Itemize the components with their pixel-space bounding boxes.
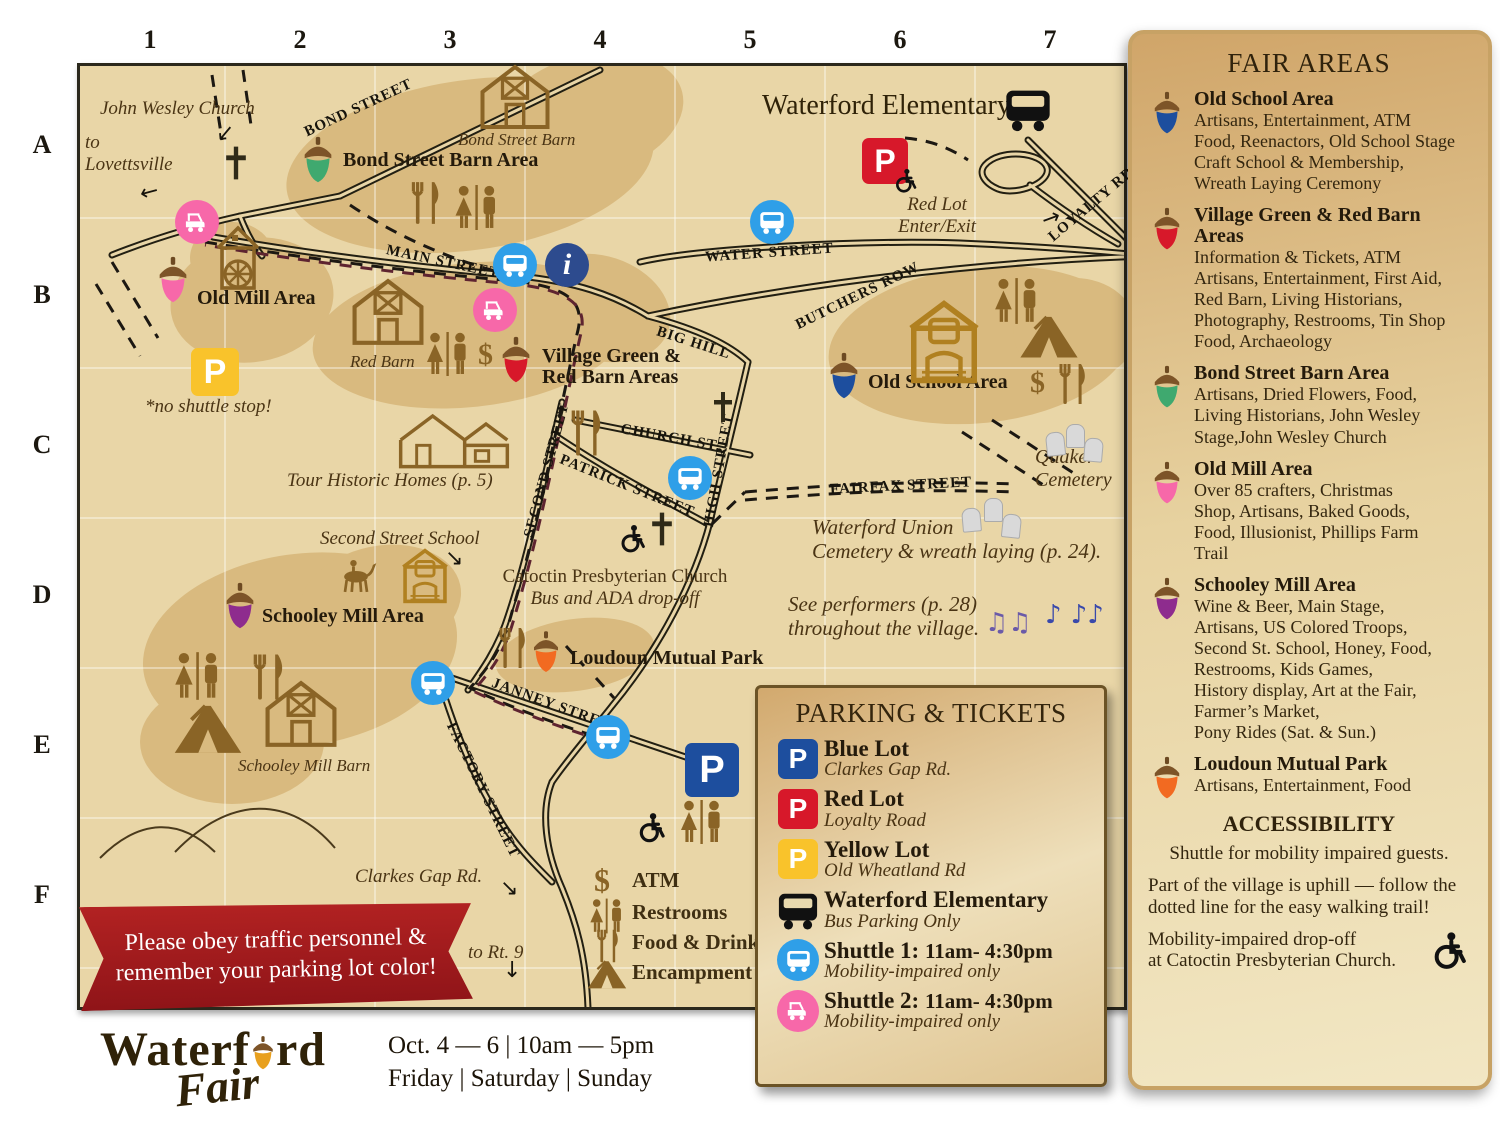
fair-dates-line2: Friday | Saturday | Sunday bbox=[388, 1063, 654, 1096]
lot-name: Waterford Elementary bbox=[824, 888, 1048, 911]
atm-icon: $ bbox=[478, 338, 493, 372]
bond-street-barn-icon bbox=[462, 62, 568, 132]
grid-row-d: D bbox=[22, 580, 62, 610]
fair-area-village-green: Village Green & Red Barn Areas Informati… bbox=[1148, 205, 1470, 352]
lot-name: Yellow Lot bbox=[824, 838, 965, 861]
fair-area-name: Old School Area bbox=[1194, 89, 1455, 110]
grid-col-6: 6 bbox=[880, 25, 920, 55]
acorn-icon-loudoun bbox=[530, 630, 562, 674]
accessibility-p1: Shuttle for mobility impaired guests. bbox=[1148, 843, 1470, 865]
fair-area-desc: Over 85 crafters, Christmas Shop, Artisa… bbox=[1194, 480, 1419, 564]
acorn-icon-old-mill bbox=[155, 256, 191, 304]
arrow-to-rt9-icon: ↓ bbox=[503, 958, 521, 983]
quaker-cemetery-stones-icon bbox=[1046, 424, 1106, 474]
acorn-icon-schooley bbox=[222, 582, 258, 630]
fair-dates-line1: Oct. 4 — 6 | 10am — 5pm bbox=[388, 1030, 654, 1063]
shuttle-bus-stop-icon bbox=[411, 661, 455, 705]
fair-area-bond-street: Bond Street Barn Area Artisans, Dried Fl… bbox=[1148, 363, 1470, 447]
restrooms-icon bbox=[678, 800, 726, 844]
label-catoctin-church: Catoctin Presbyterian Church Bus and ADA… bbox=[455, 566, 775, 610]
lot-location: Bus Parking Only bbox=[824, 912, 1048, 932]
legend-restrooms-label: Restrooms bbox=[632, 900, 727, 925]
fair-area-name: Schooley Mill Area bbox=[1194, 575, 1432, 596]
shuttle-name: Shuttle 2: bbox=[824, 988, 919, 1013]
atm-icon: $ bbox=[1030, 366, 1045, 400]
yellow-lot-parking-icon: P bbox=[778, 839, 818, 879]
lot-name: Blue Lot bbox=[824, 737, 951, 760]
golf-cart-shuttle-icon bbox=[473, 288, 517, 332]
label-john-wesley-church: John Wesley Church bbox=[100, 98, 255, 120]
shuttle-bus-stop-icon bbox=[586, 715, 630, 759]
label-bond-street-barn: Bond Street Barn bbox=[458, 130, 575, 150]
fair-area-loudoun-mutual: Loudoun Mutual Park Artisans, Entertainm… bbox=[1148, 754, 1470, 800]
grid-row-c: C bbox=[22, 430, 62, 460]
area-label-schooley: Schooley Mill Area bbox=[262, 606, 424, 627]
grid-col-3: 3 bbox=[430, 25, 470, 55]
acorn-icon bbox=[1148, 91, 1186, 135]
restrooms-icon bbox=[172, 652, 224, 700]
sidebar-title: FAIR AREAS bbox=[1148, 48, 1470, 79]
encampment-tent-icon bbox=[586, 958, 628, 990]
label-performers: See performers (p. 28) throughout the vi… bbox=[788, 592, 979, 640]
shuttle-bus-stop-icon bbox=[493, 243, 537, 287]
label-red-barn: Red Barn bbox=[350, 352, 415, 372]
acorn-icon-bond bbox=[300, 136, 336, 184]
area-label-bond: Bond Street Barn Area bbox=[343, 150, 538, 171]
label-catoctin-line1: Catoctin Presbyterian Church bbox=[455, 566, 775, 588]
old-mill-building-icon bbox=[206, 222, 270, 294]
fair-area-name: Bond Street Barn Area bbox=[1194, 363, 1420, 384]
lot-location: Old Wheatland Rd bbox=[824, 861, 965, 881]
parking-row-shuttle1: Shuttle 1: 11am- 4:30pm Mobility-impaire… bbox=[772, 939, 1090, 982]
second-street-school-icon bbox=[396, 546, 454, 606]
food-drink-icon bbox=[252, 652, 288, 702]
parking-row-blue-lot: P Blue Lot Clarkes Gap Rd. bbox=[772, 737, 1090, 780]
grid-col-4: 4 bbox=[580, 25, 620, 55]
legend-atm-label: ATM bbox=[632, 868, 679, 893]
fair-area-desc: Information & Tickets, ATM Artisans, Ent… bbox=[1194, 247, 1470, 352]
restrooms-icon bbox=[424, 332, 472, 376]
grid-col-5: 5 bbox=[730, 25, 770, 55]
shuttle-note: Mobility-impaired only bbox=[824, 962, 1053, 982]
grid-row-e: E bbox=[22, 730, 62, 760]
acorn-icon-old-school bbox=[826, 352, 862, 400]
food-drink-icon bbox=[498, 626, 530, 670]
lot-location: Loyalty Road bbox=[824, 811, 926, 831]
fair-area-name: Village Green & Red Barn Areas bbox=[1194, 205, 1470, 247]
legend-encampment-label: Encampment bbox=[632, 960, 752, 985]
label-union-cemetery: Waterford Union Cemetery & wreath laying… bbox=[812, 515, 1101, 563]
accessibility-p3: Mobility-impaired drop-off at Catoctin P… bbox=[1148, 929, 1396, 972]
grid-col-2: 2 bbox=[280, 25, 320, 55]
union-cemetery-stones-icon bbox=[962, 498, 1022, 550]
arrow-clarkes-gap-icon: ↘ bbox=[500, 876, 518, 901]
fair-area-old-mill: Old Mill Area Over 85 crafters, Christma… bbox=[1148, 459, 1470, 564]
traffic-banner: Please obey traffic personnel & remember… bbox=[79, 899, 473, 1011]
yellow-lot-parking-icon: P bbox=[191, 348, 239, 396]
label-waterford-elementary: Waterford Elementary bbox=[762, 90, 1011, 122]
grid-col-7: 7 bbox=[1030, 25, 1070, 55]
fair-area-name: Old Mill Area bbox=[1194, 459, 1419, 480]
wheelchair-icon bbox=[636, 812, 668, 844]
fair-area-old-school: Old School Area Artisans, Entertainment,… bbox=[1148, 89, 1470, 194]
shuttle-bus-stop-icon bbox=[668, 456, 712, 500]
food-drink-icon bbox=[410, 180, 444, 226]
fair-areas-sidebar: FAIR AREAS Old School Area Artisans, Ent… bbox=[1128, 30, 1492, 1090]
parking-row-shuttle2: Shuttle 2: 11am- 4:30pm Mobility-impaire… bbox=[772, 989, 1090, 1032]
red-lot-parking-icon: P bbox=[778, 789, 818, 829]
label-tour-historic-homes: Tour Historic Homes (p. 5) bbox=[287, 470, 493, 492]
label-no-shuttle-stop: *no shuttle stop! bbox=[145, 396, 272, 418]
parking-row-bus: Waterford Elementary Bus Parking Only bbox=[772, 888, 1090, 931]
wheelchair-icon bbox=[893, 168, 919, 194]
label-schooley-mill-barn: Schooley Mill Barn bbox=[238, 756, 370, 776]
information-icon: i bbox=[545, 243, 589, 287]
fair-area-name: Loudoun Mutual Park bbox=[1194, 754, 1411, 775]
label-catoctin-line2: Bus and ADA drop-off bbox=[455, 588, 775, 610]
logo-fair-script: Fair bbox=[172, 1056, 261, 1118]
traffic-banner-text: Please obey traffic personnel & remember… bbox=[115, 922, 437, 989]
bus-parking-icon bbox=[1002, 85, 1054, 133]
lot-location: Clarkes Gap Rd. bbox=[824, 760, 951, 780]
encampment-tent-icon bbox=[1018, 312, 1080, 360]
parking-panel-title: PARKING & TICKETS bbox=[772, 698, 1090, 729]
music-notes-icon: ♪ ♪♪ bbox=[1045, 600, 1104, 630]
accessibility-title: ACCESSIBILITY bbox=[1148, 811, 1470, 837]
lot-name: Red Lot bbox=[824, 787, 926, 810]
acorn-icon bbox=[1148, 577, 1186, 621]
fair-dates: Oct. 4 — 6 | 10am — 5pm Friday | Saturda… bbox=[388, 1030, 654, 1095]
restrooms-icon bbox=[452, 185, 502, 230]
grid-row-f: F bbox=[22, 880, 62, 910]
shuttle-time: 11am- 4:30pm bbox=[925, 939, 1053, 963]
label-to-lovettsville: to Lovettsville bbox=[85, 132, 173, 176]
blue-lot-parking-icon: P bbox=[778, 739, 818, 779]
music-notes-icon: ♫♫ bbox=[985, 608, 1032, 638]
atm-icon: $ bbox=[594, 862, 610, 899]
blue-lot-parking-icon: P bbox=[685, 743, 739, 797]
old-school-building-icon bbox=[898, 298, 990, 386]
grid-col-1: 1 bbox=[130, 25, 170, 55]
grid-row-b: B bbox=[22, 280, 62, 310]
shuttle-bus-stop-icon bbox=[750, 200, 794, 244]
wheelchair-icon bbox=[1430, 931, 1470, 971]
church-cross-icon bbox=[712, 392, 734, 422]
golf-cart-shuttle-icon bbox=[777, 990, 819, 1032]
shuttle-time: 11am- 4:30pm bbox=[925, 989, 1053, 1013]
acorn-icon bbox=[1148, 461, 1186, 505]
fair-area-schooley-mill: Schooley Mill Area Wine & Beer, Main Sta… bbox=[1148, 575, 1470, 743]
fair-area-desc: Artisans, Dried Flowers, Food, Living Hi… bbox=[1194, 384, 1420, 447]
label-clarkes-gap-rd: Clarkes Gap Rd. bbox=[355, 866, 482, 888]
wheelchair-icon bbox=[618, 524, 648, 554]
accessibility-p2: Part of the village is uphill — follow t… bbox=[1148, 875, 1470, 919]
shuttle-name: Shuttle 1: bbox=[824, 938, 919, 963]
red-barn-icon bbox=[342, 276, 434, 348]
acorn-icon bbox=[1148, 207, 1186, 251]
bus-parking-icon bbox=[775, 889, 821, 931]
church-cross-icon bbox=[224, 146, 248, 180]
historic-house-icon bbox=[392, 408, 516, 472]
accessibility-p3-wrap: Mobility-impaired drop-off at Catoctin P… bbox=[1148, 929, 1470, 973]
grid-row-a: A bbox=[22, 130, 62, 160]
church-cross-icon bbox=[650, 512, 674, 546]
logo-text-end: rd bbox=[276, 1023, 326, 1076]
legend-food-label: Food & Drink bbox=[632, 930, 759, 955]
parking-tickets-panel: PARKING & TICKETS P Blue Lot Clarkes Gap… bbox=[755, 685, 1107, 1087]
acorn-icon bbox=[1148, 365, 1186, 409]
acorn-icon bbox=[1148, 756, 1186, 800]
fair-area-desc: Wine & Beer, Main Stage, Artisans, US Co… bbox=[1194, 596, 1432, 743]
encampment-tent-icon bbox=[172, 700, 244, 756]
shuttle-bus-icon bbox=[777, 939, 819, 981]
horse-rider-icon bbox=[334, 556, 378, 594]
fair-area-desc: Artisans, Entertainment, Food bbox=[1194, 775, 1411, 796]
label-red-lot-enter-exit: Red Lot Enter/Exit bbox=[898, 194, 976, 238]
area-label-loudoun: Loudoun Mutual Park bbox=[570, 648, 763, 669]
food-drink-icon bbox=[570, 408, 606, 458]
fair-area-desc: Artisans, Entertainment, ATM Food, Reena… bbox=[1194, 110, 1455, 194]
acorn-icon-village bbox=[498, 336, 534, 384]
parking-row-red-lot: P Red Lot Loyalty Road bbox=[772, 787, 1090, 830]
area-label-village: Village Green & Red Barn Areas bbox=[542, 346, 681, 388]
food-drink-icon bbox=[1058, 362, 1090, 406]
shuttle-note: Mobility-impaired only bbox=[824, 1012, 1053, 1032]
parking-row-yellow-lot: P Yellow Lot Old Wheatland Rd bbox=[772, 838, 1090, 881]
waterford-fair-map-page: 1 2 3 4 5 6 7 A B C D E F BOND STREET MA… bbox=[0, 0, 1500, 1125]
